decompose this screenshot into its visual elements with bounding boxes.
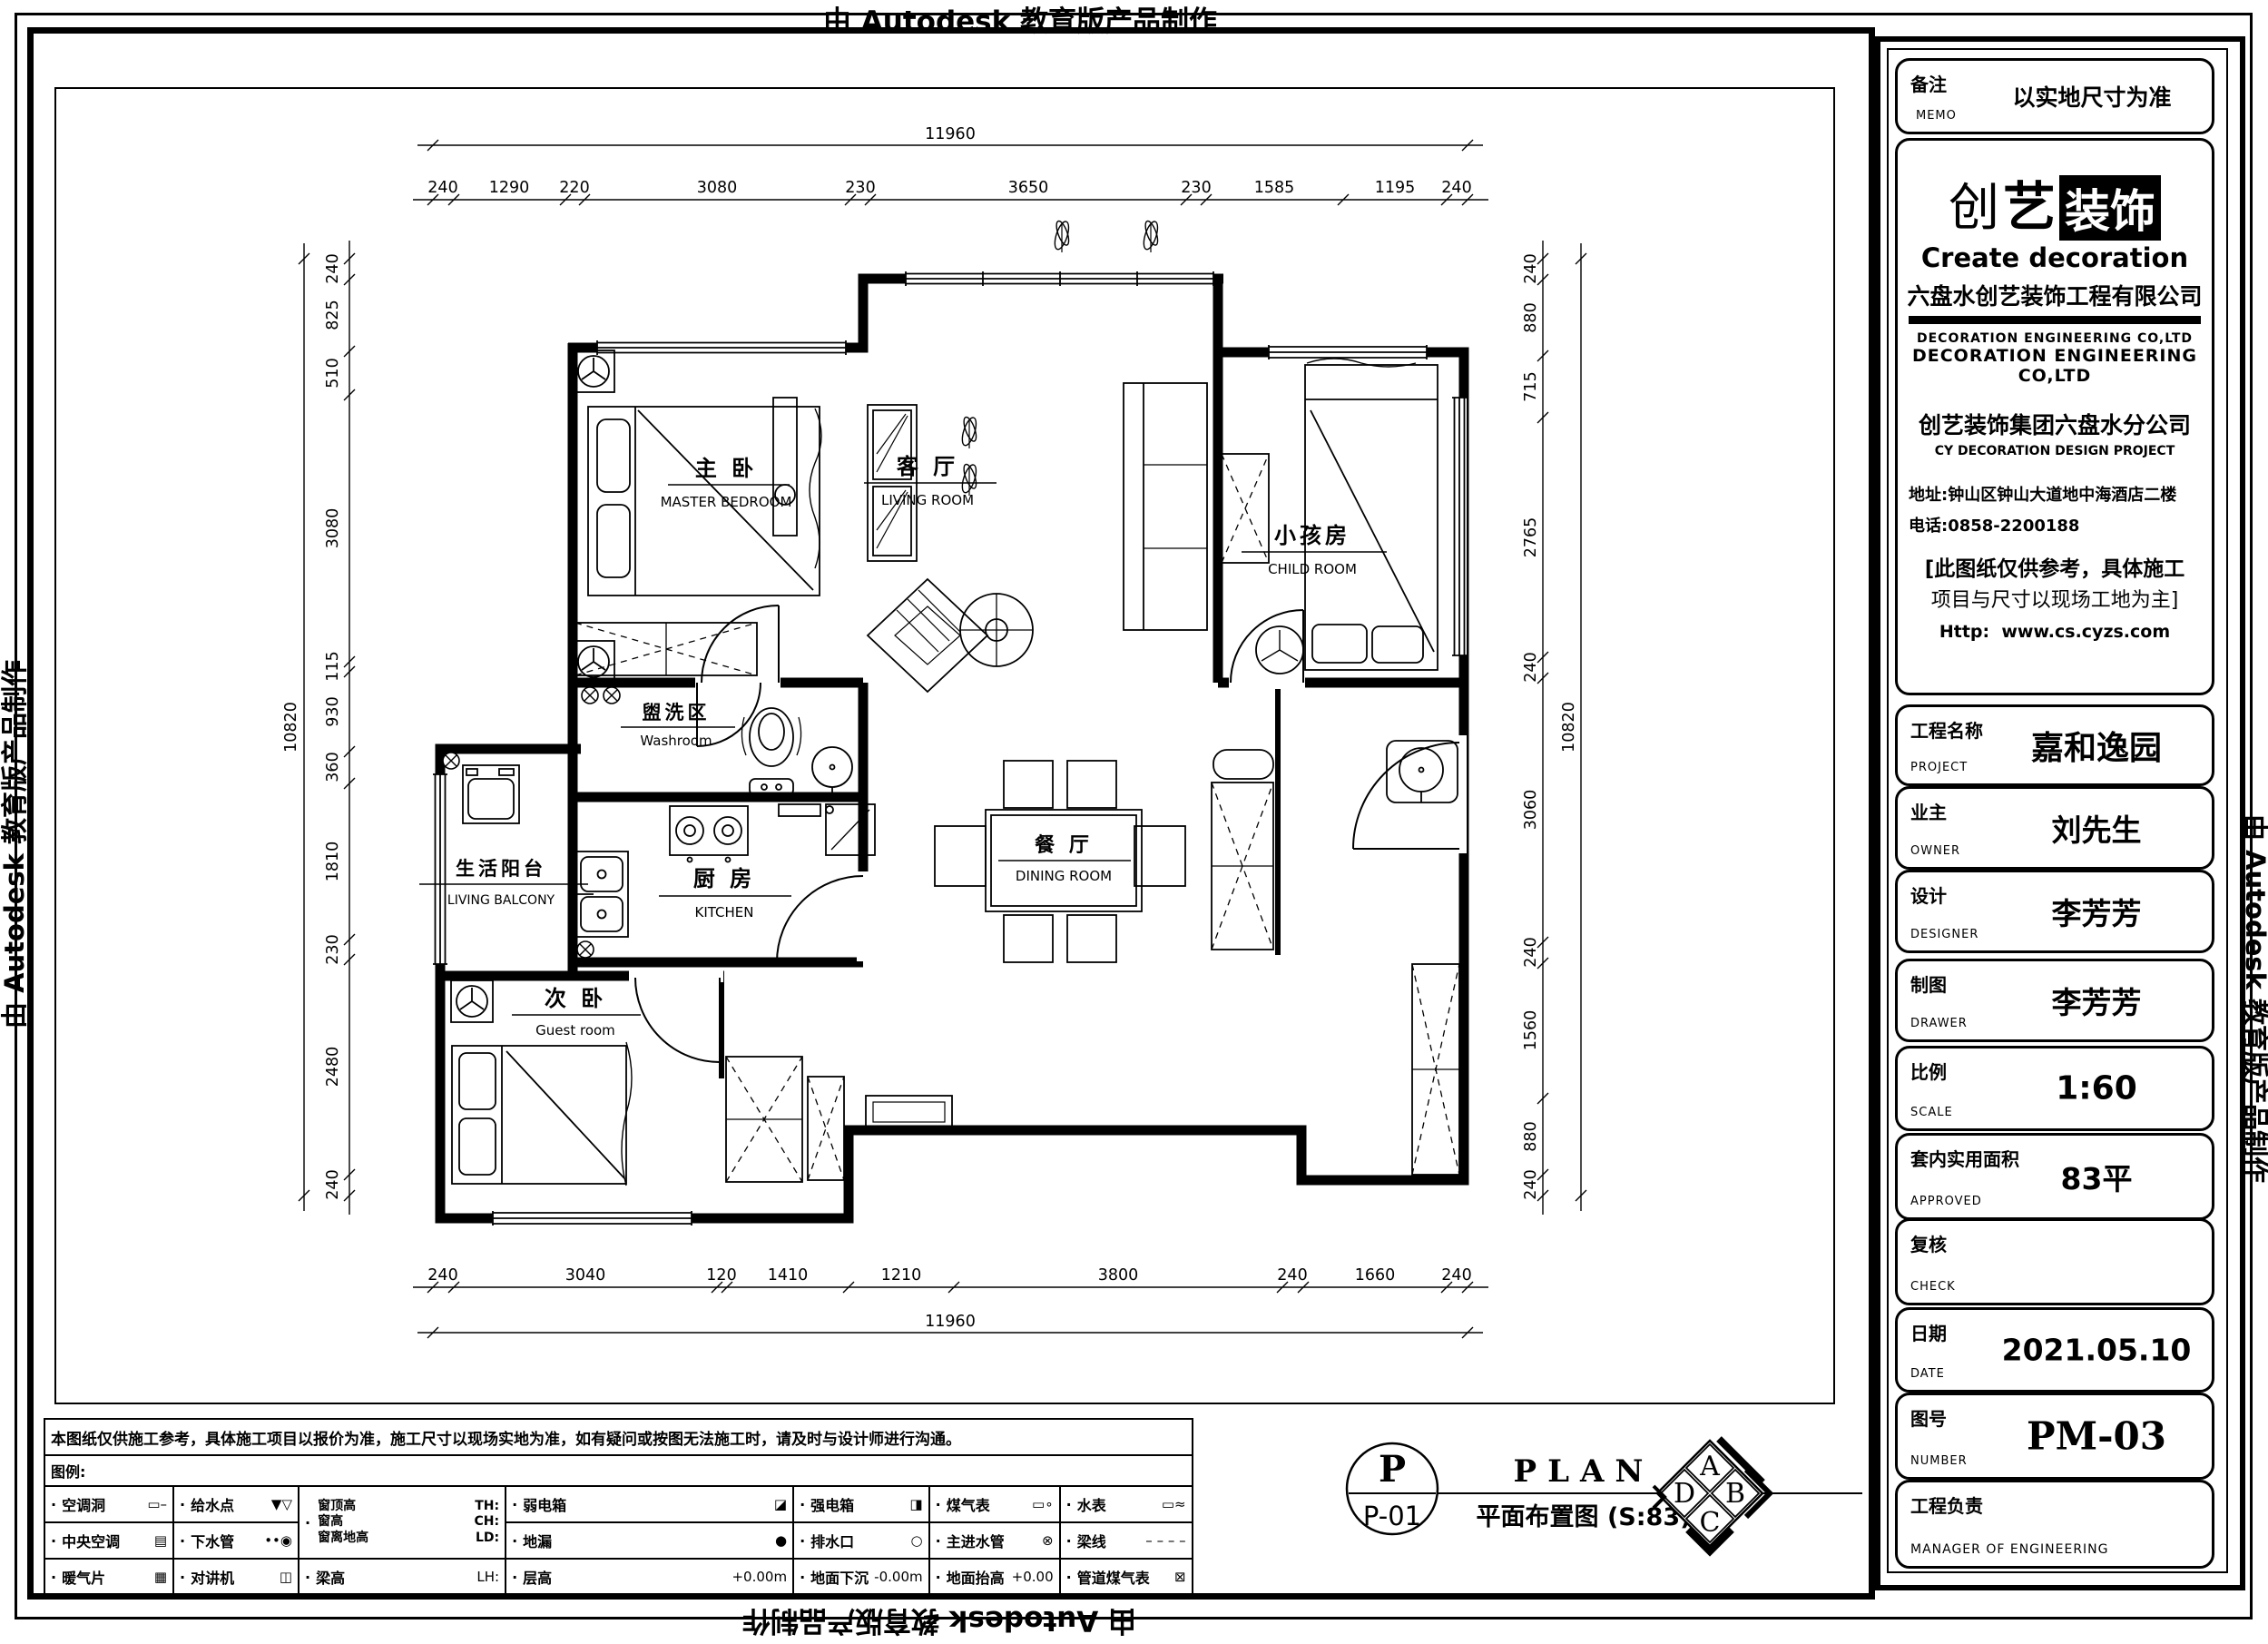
window-top-height-code: TH:	[475, 1499, 499, 1515]
dim-label: 930	[324, 696, 342, 726]
legend-item-beam-height: ·梁高LH:	[299, 1559, 506, 1595]
compass-c: C	[1700, 1507, 1721, 1539]
dim-label: 880	[1522, 1121, 1540, 1151]
rug-icon	[868, 579, 987, 692]
plant-icon	[1052, 220, 1071, 252]
window-guest-bottom	[493, 1211, 692, 1226]
dim-label: 240	[1522, 937, 1540, 967]
bullet: ·	[51, 1569, 56, 1586]
dim-label: 240	[324, 1169, 342, 1199]
room-label-living: 客 厅LIVING ROOM	[864, 454, 997, 508]
svg-text:Guest room: Guest room	[535, 1022, 615, 1039]
titleblock-field-number: 图号NUMBERPM-03	[1895, 1393, 2214, 1480]
legend-item-floor-raised: ·地面抬高+0.00	[929, 1559, 1060, 1595]
floor-height-icon: +0.00m	[731, 1569, 787, 1585]
floor-sunken-icon: -0.00m	[874, 1569, 922, 1585]
water-supply-icon: ▼▽	[271, 1496, 292, 1512]
room-label-kitchen: 厨 房KITCHEN	[659, 866, 791, 920]
legend-caption: 图例:	[44, 1455, 1193, 1486]
bullet: ·	[936, 1569, 941, 1586]
drain-icon	[582, 687, 598, 704]
sewer-pipe-icon: ••◉	[264, 1532, 292, 1549]
beam-height-code: LH:	[476, 1569, 499, 1585]
plan-title: P P-01 PLAN 平面布置图 (S:83) A B C D	[1347, 1439, 1862, 1551]
legend-item-central-ac: ·中央空调▤	[44, 1522, 173, 1559]
drain-icon	[443, 753, 459, 769]
door-master	[702, 605, 779, 683]
compass-d: D	[1674, 1478, 1695, 1510]
weak-box-icon: ◪	[774, 1496, 787, 1512]
kitchen-sink-icon	[575, 852, 628, 937]
bullet: ·	[180, 1569, 185, 1586]
dim-label: 3650	[1008, 179, 1049, 197]
disclaimer-line2: 项目与尺寸以现场工地为主]	[1898, 584, 2212, 613]
dim-label: 510	[324, 358, 342, 388]
hall-cabinet-icon	[1212, 750, 1273, 950]
bullet: ·	[1066, 1496, 1072, 1513]
bullet: ·	[800, 1532, 805, 1550]
window-master-top	[597, 340, 846, 355]
hall-cabinet-icon	[1412, 964, 1459, 1175]
legend-item-floor-sunken: ·地面下沉-0.00m	[793, 1559, 929, 1595]
dim-label: 3800	[1098, 1266, 1139, 1285]
bullet: ·	[51, 1532, 56, 1550]
dim-label: 240	[324, 253, 342, 283]
legend-item-sewer-pipe: ·下水管••◉	[173, 1522, 299, 1559]
company-name: 六盘水创艺装饰工程有限公司	[1898, 279, 2212, 311]
furniture	[443, 220, 1459, 1186]
dim-label: 1195	[1375, 179, 1416, 197]
branch-name: 创艺装饰集团六盘水分公司	[1898, 408, 2212, 440]
dim-label: 715	[1522, 371, 1540, 401]
dim-label: 3080	[324, 508, 342, 549]
fan-icon	[1256, 626, 1303, 674]
svg-text:生活阳台: 生活阳台	[456, 858, 546, 880]
guest-bed-icon	[452, 1042, 632, 1186]
intercom-icon: ◫	[280, 1569, 292, 1585]
legend-item-floor-height: ·层高+0.00m	[506, 1559, 793, 1595]
memo-box: 备注 MEMO 以实地尺寸为准	[1895, 58, 2214, 134]
svg-text:厨 房: 厨 房	[693, 866, 755, 891]
door-openings	[629, 676, 1467, 982]
legend-item-water-meter: ·水表▭≈	[1060, 1486, 1193, 1522]
room-label-washroom: 盥洗区Washroom	[621, 702, 735, 749]
company-name-en: DECORATION ENGINEERING CO,LTD	[1898, 331, 2212, 346]
drain-icon	[577, 941, 594, 958]
legend-item-strong-box: ·强电箱◨	[793, 1486, 929, 1522]
titleblock-field-drawer: 制图DRAWER李芳芳	[1895, 959, 2214, 1042]
dim-label: 240	[1522, 253, 1540, 283]
bullet: ·	[1066, 1532, 1072, 1550]
company-logo: 创 艺 装饰	[1898, 164, 2212, 241]
titleblock-field-manager: 工程负责MANAGER OF ENGINEERING	[1895, 1480, 2214, 1569]
dim-label: 220	[559, 179, 589, 197]
window-height-code: CH:	[474, 1514, 499, 1531]
room-label-master: 主 卧MASTER BEDROOM	[661, 456, 792, 510]
dim-label: 240	[1522, 1169, 1540, 1199]
titleblock-field-scale: 比例SCALE1:60	[1895, 1046, 2214, 1131]
svg-text:主 卧: 主 卧	[695, 456, 757, 481]
legend-item-main-water: ·主进水管⊗	[929, 1522, 1060, 1559]
closet-icon	[808, 1077, 844, 1180]
washing-machine-icon	[463, 765, 519, 823]
legend-item-pipe-gas: ·管道煤气表⊠	[1060, 1559, 1193, 1595]
legend-item-radiator: ·暖气片▦	[44, 1559, 173, 1595]
closet-icon	[1222, 454, 1269, 563]
dim-label: 3080	[697, 179, 738, 197]
company-phone: 电话:0858-2200188	[1909, 513, 2212, 537]
dim-label: 240	[1522, 652, 1540, 682]
dim-label: 1560	[1522, 1010, 1540, 1051]
company-name-en-bold: DECORATION ENGINEERING CO,LTD	[1898, 346, 2212, 386]
svg-text:DINING ROOM: DINING ROOM	[1016, 868, 1112, 884]
svg-text:LIVING BALCONY: LIVING BALCONY	[447, 893, 555, 908]
bullet: ·	[180, 1496, 185, 1513]
gas-meter-icon: ▭∘	[1032, 1496, 1054, 1512]
room-label-guest: 次 卧Guest room	[512, 986, 641, 1039]
legend-table: 本图纸仅供施工参考，具体施工项目以报价为准，施工尺寸以现场实地为准，如有疑问或按…	[44, 1418, 1193, 1596]
bullet: ·	[305, 1569, 310, 1586]
company-website: Http: www.cs.cyzs.com	[1898, 622, 2212, 642]
svg-text:餐 厅: 餐 厅	[1035, 834, 1093, 857]
legend-item-ac-hole: ·空调洞▭–	[44, 1486, 173, 1522]
window-child-top	[1269, 345, 1427, 359]
child-bed-icon	[1305, 359, 1438, 670]
titleblock-field-date: 日期DATE2021.05.10	[1895, 1307, 2214, 1393]
sheet-tag-number: P-01	[1363, 1501, 1421, 1531]
basin-icon	[812, 747, 852, 799]
bullet: ·	[512, 1496, 517, 1513]
svg-text:LIVING ROOM: LIVING ROOM	[881, 492, 974, 508]
floor-raised-icon: +0.00	[1012, 1569, 1054, 1585]
fan-icon	[960, 594, 1033, 666]
drain-icon	[604, 687, 620, 704]
legend-item-beam-line: ·梁线– – – –	[1060, 1522, 1193, 1559]
sofa-icon	[1124, 383, 1207, 630]
dim-label: 10820	[282, 702, 300, 753]
legend-note: 本图纸仅供施工参考，具体施工项目以报价为准，施工尺寸以现场实地为准，如有疑问或按…	[44, 1419, 1193, 1455]
legend-item-intercom: ·对讲机◫	[173, 1559, 299, 1595]
door-child	[1231, 610, 1303, 683]
svg-text:KITCHEN: KITCHEN	[695, 904, 754, 920]
door-kitchen	[777, 876, 863, 962]
plan-title-zh: 平面布置图 (S:83)	[1477, 1503, 1692, 1531]
room-label-child: 小孩房CHILD ROOM	[1242, 523, 1387, 577]
svg-text:MASTER BEDROOM: MASTER BEDROOM	[661, 494, 792, 510]
dim-label: 120	[706, 1266, 736, 1285]
strong-box-icon: ◨	[909, 1496, 922, 1512]
closet-icon	[726, 1057, 802, 1182]
walls	[440, 274, 1464, 1218]
dim-label: 240	[427, 1266, 457, 1285]
dim-label: 1585	[1254, 179, 1295, 197]
dim-label: 230	[845, 179, 875, 197]
dim-label: 360	[324, 752, 342, 782]
svg-text:次 卧: 次 卧	[545, 986, 606, 1011]
titleblock-field-designer: 设计DESIGNER李芳芳	[1895, 870, 2214, 953]
disclaimer-line1: [此图纸仅供参考，具体施工	[1898, 551, 2212, 582]
window-sill-code: LD:	[476, 1531, 499, 1547]
compass-a: A	[1699, 1451, 1720, 1482]
company-box: 创 艺 装饰 Create decoration 六盘水创艺装饰工程有限公司 D…	[1895, 138, 2214, 695]
bullet: ·	[800, 1569, 805, 1586]
dim-label: 10820	[1560, 702, 1578, 753]
svg-text:客 厅: 客 厅	[897, 454, 958, 479]
bullet: ·	[800, 1496, 805, 1513]
beam-line-icon: – – – –	[1145, 1532, 1185, 1549]
ac-hole-icon	[451, 980, 493, 1022]
plant-icon	[959, 416, 978, 448]
dim-label: 1660	[1355, 1266, 1396, 1285]
water-meter-icon: ▭≈	[1162, 1496, 1186, 1512]
sheet-tag: P	[1379, 1448, 1406, 1491]
floor-step-icon	[866, 1096, 952, 1128]
dim-label: 1410	[768, 1266, 809, 1285]
memo-value: 以实地尺寸为准	[1979, 80, 2204, 113]
plan-title-en: PLAN	[1514, 1453, 1654, 1490]
dim-label: 240	[1441, 179, 1471, 197]
legend-item-gas-meter: ·煤气表▭∘	[929, 1486, 1060, 1522]
dim-label: 3060	[1522, 790, 1540, 831]
bullet: ·	[936, 1532, 941, 1550]
svg-text:盥洗区: 盥洗区	[643, 702, 711, 724]
legend-item-floor-drain: ·地漏●	[506, 1522, 793, 1559]
titleblock-field-approved: 套内实用面积APPROVED83平	[1895, 1133, 2214, 1220]
window-child-right	[1452, 398, 1467, 655]
dimension-labels: 11960 240 1290 220 3080 230 3650 230 158…	[282, 125, 1578, 1331]
dim-label: 1810	[324, 842, 342, 882]
bullet: ·	[936, 1496, 941, 1513]
ac-hole-icon	[573, 350, 614, 392]
drain-outlet-icon: ○	[911, 1532, 923, 1549]
company-logo-en: Create decoration	[1898, 242, 2212, 273]
dining-set-icon	[935, 761, 1185, 962]
bullet: ·	[51, 1496, 56, 1513]
dim-label: 1210	[881, 1266, 922, 1285]
branch-name-en: CY DECORATION DESIGN PROJECT	[1898, 444, 2212, 458]
dim-label: 825	[324, 300, 342, 330]
legend-item-window-heights: · 窗顶高TH: 窗高CH: 窗离地高LD:	[299, 1486, 506, 1559]
door-guest	[635, 978, 720, 1062]
door-entry	[1353, 743, 1459, 849]
stove-icon	[670, 806, 748, 862]
dim-label: 240	[427, 179, 457, 197]
bullet: ·	[512, 1569, 517, 1586]
dim-label: 1290	[489, 179, 530, 197]
main-water-icon: ⊗	[1042, 1532, 1054, 1549]
ac-hole-icon	[573, 641, 614, 683]
bullet: ·	[180, 1532, 185, 1550]
window-living-top	[906, 271, 1213, 286]
pipe-gas-icon: ⊠	[1174, 1569, 1186, 1585]
svg-text:Washroom: Washroom	[640, 733, 712, 749]
room-label-dining: 餐 厅DINING ROOM	[998, 834, 1131, 884]
squat-toilet-icon	[741, 708, 800, 795]
dim-label: 240	[1441, 1266, 1471, 1285]
legend-item-weak-box: ·弱电箱◪	[506, 1486, 793, 1522]
bullet: ·	[512, 1532, 517, 1550]
window-balcony-left	[433, 774, 447, 964]
legend-item-drain-outlet: ·排水口○	[793, 1522, 929, 1559]
svg-text:小孩房: 小孩房	[1274, 523, 1350, 548]
ac-hole-icon: ▭–	[147, 1496, 167, 1512]
svg-text:CHILD ROOM: CHILD ROOM	[1268, 561, 1357, 577]
hood-icon	[779, 804, 833, 816]
titleblock-field-owner: 业主OWNER刘先生	[1895, 786, 2214, 870]
dim-label: 11960	[925, 1313, 976, 1331]
dim-label: 230	[1181, 179, 1211, 197]
dim-label: 115	[324, 651, 342, 681]
floor-drain-icon: ●	[775, 1532, 787, 1549]
plant-icon	[959, 463, 978, 496]
dim-label: 2480	[324, 1047, 342, 1088]
dim-label: 230	[324, 934, 342, 964]
compass-b: B	[1725, 1478, 1745, 1510]
radiator-icon: ▦	[154, 1569, 167, 1585]
dim-label: 240	[1277, 1266, 1307, 1285]
bullet: ·	[305, 1514, 310, 1531]
divider	[1909, 316, 2201, 324]
dim-label: 11960	[925, 125, 976, 143]
orientation-compass: A B C D	[1654, 1439, 1770, 1551]
plant-icon	[1141, 220, 1160, 252]
dimensions	[299, 140, 1586, 1338]
company-address: 地址:钟山区钟山大道地中海酒店二楼	[1909, 482, 2212, 506]
titleblock-field-project: 工程名称PROJECT嘉和逸园	[1895, 704, 2214, 786]
bullet: ·	[1066, 1569, 1072, 1586]
dim-label: 3040	[565, 1266, 606, 1285]
dim-label: 2765	[1522, 517, 1540, 558]
central-ac-icon: ▤	[154, 1532, 167, 1549]
dim-label: 880	[1522, 302, 1540, 332]
dresser-icon	[773, 398, 797, 536]
legend-item-water-supply: ·给水点▼▽	[173, 1486, 299, 1522]
titleblock-field-check: 复核CHECK	[1895, 1218, 2214, 1305]
